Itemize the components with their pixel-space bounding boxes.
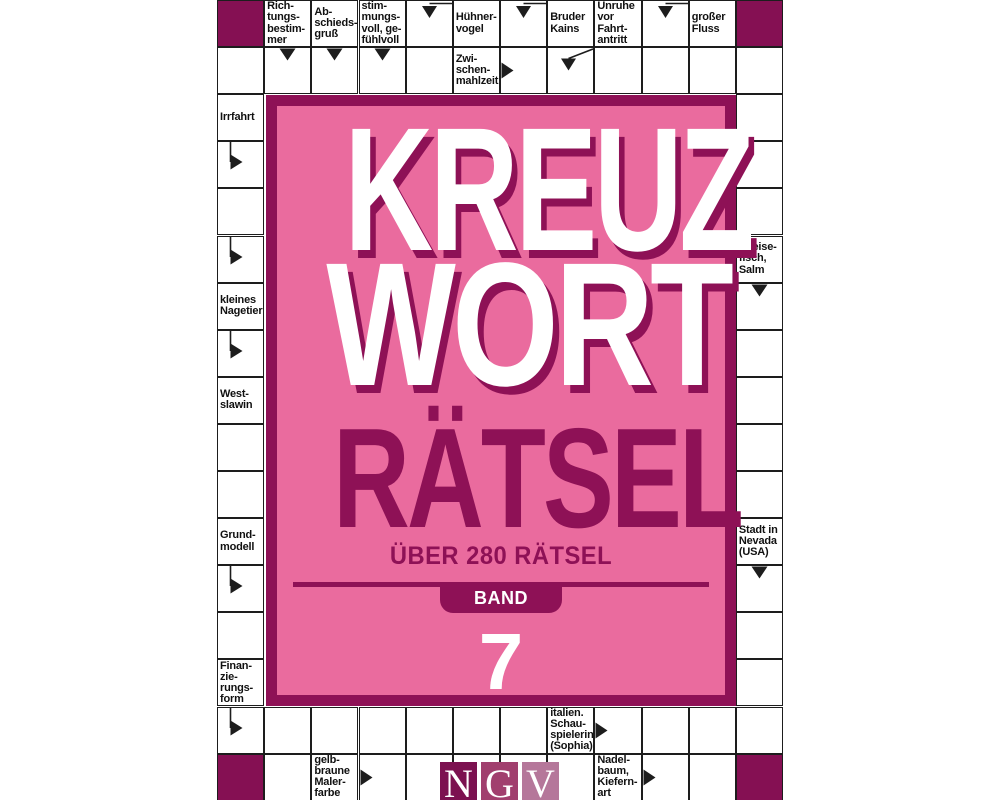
band-number: 7 <box>277 622 725 702</box>
grid-cell <box>736 377 783 424</box>
cover-panel: KREUZ WORT RÄTSEL ÜBER 280 RÄTSEL BAND 7 <box>266 95 736 706</box>
grid-cell <box>264 754 311 800</box>
grid-cell <box>264 47 311 94</box>
blocked-cell <box>736 754 783 800</box>
grid-cell <box>689 707 736 754</box>
grid-cell <box>736 707 783 754</box>
grid-cell <box>736 612 783 659</box>
grid-cell <box>217 565 264 612</box>
grid-cell <box>217 424 264 471</box>
band-badge: BAND <box>440 585 562 613</box>
grid-cell <box>594 707 641 754</box>
ngv-logo: N G V <box>440 762 559 800</box>
grid-cell <box>217 707 264 754</box>
clue-westslawin: West- slawin <box>217 377 264 424</box>
grid-cell <box>359 707 406 754</box>
grid-cell <box>217 188 264 235</box>
grid-cell <box>736 47 783 94</box>
clue-grosser-fluss: großer Fluss <box>689 0 736 47</box>
grid-cell <box>500 0 547 47</box>
clue-finanzierungsform: Finan- zie- rungs- form <box>217 659 264 706</box>
grid-cell <box>642 754 689 800</box>
grid-cell <box>406 47 453 94</box>
grid-cell <box>736 659 783 706</box>
clue-abschiedsgruss: Ab- schieds- gruß <box>311 0 358 47</box>
grid-cell <box>689 47 736 94</box>
grid-cell <box>642 707 689 754</box>
grid-cell <box>217 141 264 188</box>
title-line-3: RÄTSEL <box>333 408 669 550</box>
clue-unruhe-vor-fahrtantritt: Unruhe vor Fahrt- antritt <box>594 0 641 47</box>
blocked-cell <box>217 0 264 47</box>
grid-cell <box>406 0 453 47</box>
clue-stadt-in-nevada: Stadt in Nevada (USA) <box>736 518 783 565</box>
grid-cell <box>217 330 264 377</box>
clue-zwischenmahlzeit: Zwi- schen- mahlzeit <box>453 47 500 94</box>
grid-cell <box>311 47 358 94</box>
clue-stimmungsvoll: stim- mungs- voll, ge- fühlvoll <box>359 0 406 47</box>
subtitle: ÜBER 280 RÄTSEL <box>288 542 714 571</box>
clue-bruder-kains: Bruder Kains <box>547 0 594 47</box>
grid-cell <box>311 707 358 754</box>
clue-huehnervogel: Hühner- vogel <box>453 0 500 47</box>
clue-grundmodell: Grund- modell <box>217 518 264 565</box>
clue-italien-schauspielerin: italien. Schau- spielerin (Sophia) <box>547 707 594 754</box>
grid-cell <box>453 707 500 754</box>
grid-cell <box>217 471 264 518</box>
title-line-2: WORT <box>326 237 675 413</box>
grid-cell <box>736 330 783 377</box>
clue-nadelbaum: Nadel- baum, Kiefern- art <box>594 754 641 800</box>
grid-cell <box>217 236 264 283</box>
grid-cell <box>594 47 641 94</box>
blocked-cell <box>736 0 783 47</box>
clue-kleines-nagetier: kleines Nagetier <box>217 283 264 330</box>
grid-cell <box>736 565 783 612</box>
blocked-cell <box>217 754 264 800</box>
grid-cell <box>406 707 453 754</box>
grid-cell <box>264 707 311 754</box>
book-cover: Rich- tungs- bestim- merAb- schieds- gru… <box>0 0 1000 800</box>
grid-cell <box>642 47 689 94</box>
grid-cell <box>359 47 406 94</box>
grid-cell <box>500 707 547 754</box>
grid-cell <box>500 47 547 94</box>
ngv-letter-n: N <box>440 762 477 800</box>
grid-cell <box>217 612 264 659</box>
grid-cell <box>359 754 406 800</box>
grid-cell <box>217 47 264 94</box>
clue-gelbbraune-malerfarbe: gelb- braune Maler- farbe <box>311 754 358 800</box>
clue-irrfahrt: Irrfahrt <box>217 94 264 141</box>
ngv-letter-g: G <box>481 762 518 800</box>
ngv-letter-v: V <box>522 762 559 800</box>
grid-cell <box>736 424 783 471</box>
clue-richtungsbestimmer: Rich- tungs- bestim- mer <box>264 0 311 47</box>
grid-cell <box>642 0 689 47</box>
grid-cell <box>689 754 736 800</box>
grid-cell <box>736 471 783 518</box>
grid-cell <box>736 283 783 330</box>
grid-cell <box>547 47 594 94</box>
